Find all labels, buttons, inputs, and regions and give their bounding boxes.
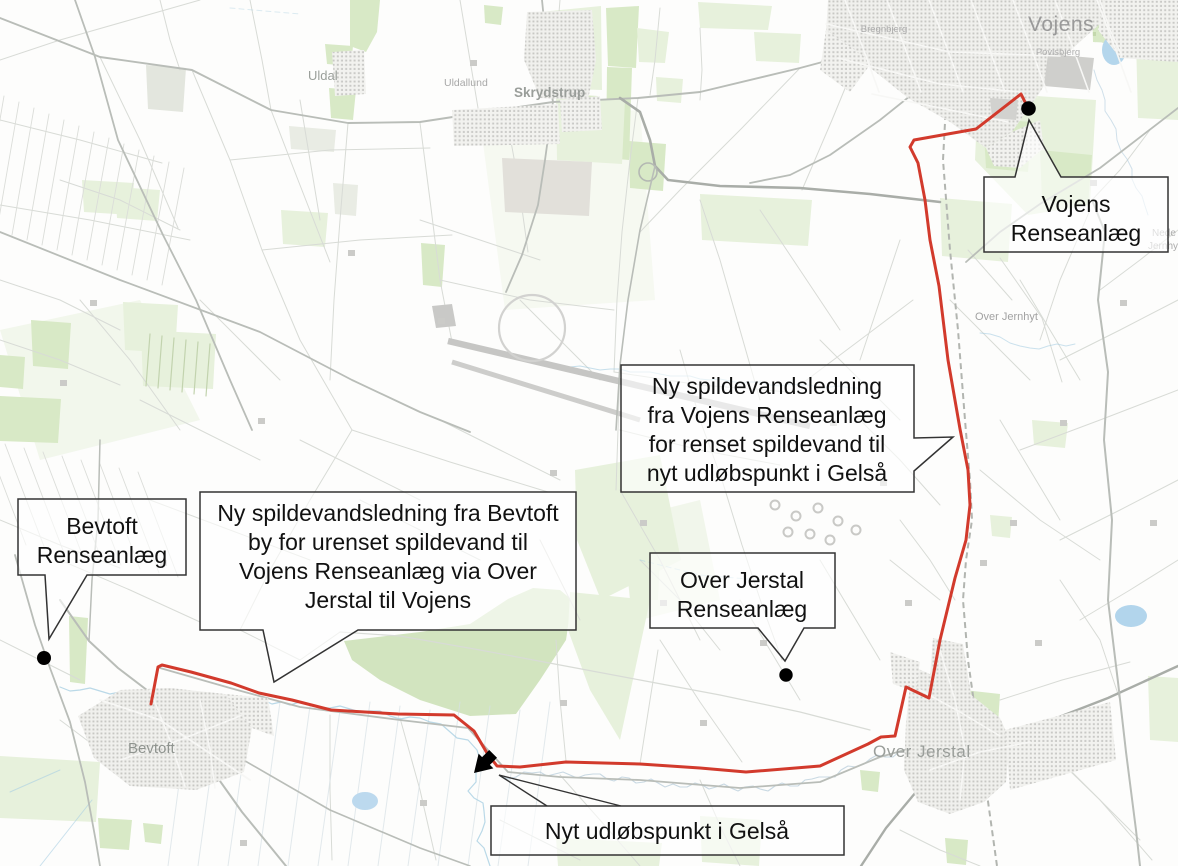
svg-text:Over Jerstal: Over Jerstal	[680, 567, 804, 593]
svg-text:by for urenset spildevand til: by for urenset spildevand til	[248, 529, 528, 555]
svg-text:Jerstal til Vojens: Jerstal til Vojens	[305, 587, 471, 613]
svg-text:Skrydstrup: Skrydstrup	[514, 85, 585, 100]
svg-text:Nyt udløbspunkt i Gelså: Nyt udløbspunkt i Gelså	[545, 818, 789, 844]
svg-text:Vojens: Vojens	[1028, 13, 1094, 36]
svg-text:Vojens Renseanlæg via Over: Vojens Renseanlæg via Over	[239, 558, 537, 584]
svg-text:Povlsbjerg: Povlsbjerg	[1036, 47, 1080, 58]
svg-text:Bevtoft: Bevtoft	[66, 513, 138, 539]
svg-text:Ny spildevandsledning: Ny spildevandsledning	[652, 373, 882, 399]
svg-text:Uldal: Uldal	[308, 68, 338, 83]
svg-text:for renset spildevand til: for renset spildevand til	[649, 431, 886, 457]
svg-text:Vojens: Vojens	[1041, 191, 1110, 217]
svg-text:Bevtoft: Bevtoft	[128, 740, 176, 757]
svg-text:Renseanlæg: Renseanlæg	[37, 542, 167, 568]
svg-text:fra Vojens Renseanlæg: fra Vojens Renseanlæg	[647, 402, 886, 428]
svg-text:nyt udløbspunkt i Gelså: nyt udløbspunkt i Gelså	[647, 460, 888, 486]
svg-text:Renseanlæg: Renseanlæg	[677, 596, 807, 622]
svg-text:Over Jernhyt: Over Jernhyt	[975, 311, 1038, 323]
svg-text:Over Jerstal: Over Jerstal	[873, 742, 971, 761]
svg-text:Uldallund: Uldallund	[444, 77, 488, 89]
svg-text:Ny spildevandsledning fra Bevt: Ny spildevandsledning fra Bevtoft	[217, 500, 559, 526]
svg-text:Bregnbjerg: Bregnbjerg	[861, 24, 907, 35]
svg-text:Renseanlæg: Renseanlæg	[1011, 220, 1141, 246]
